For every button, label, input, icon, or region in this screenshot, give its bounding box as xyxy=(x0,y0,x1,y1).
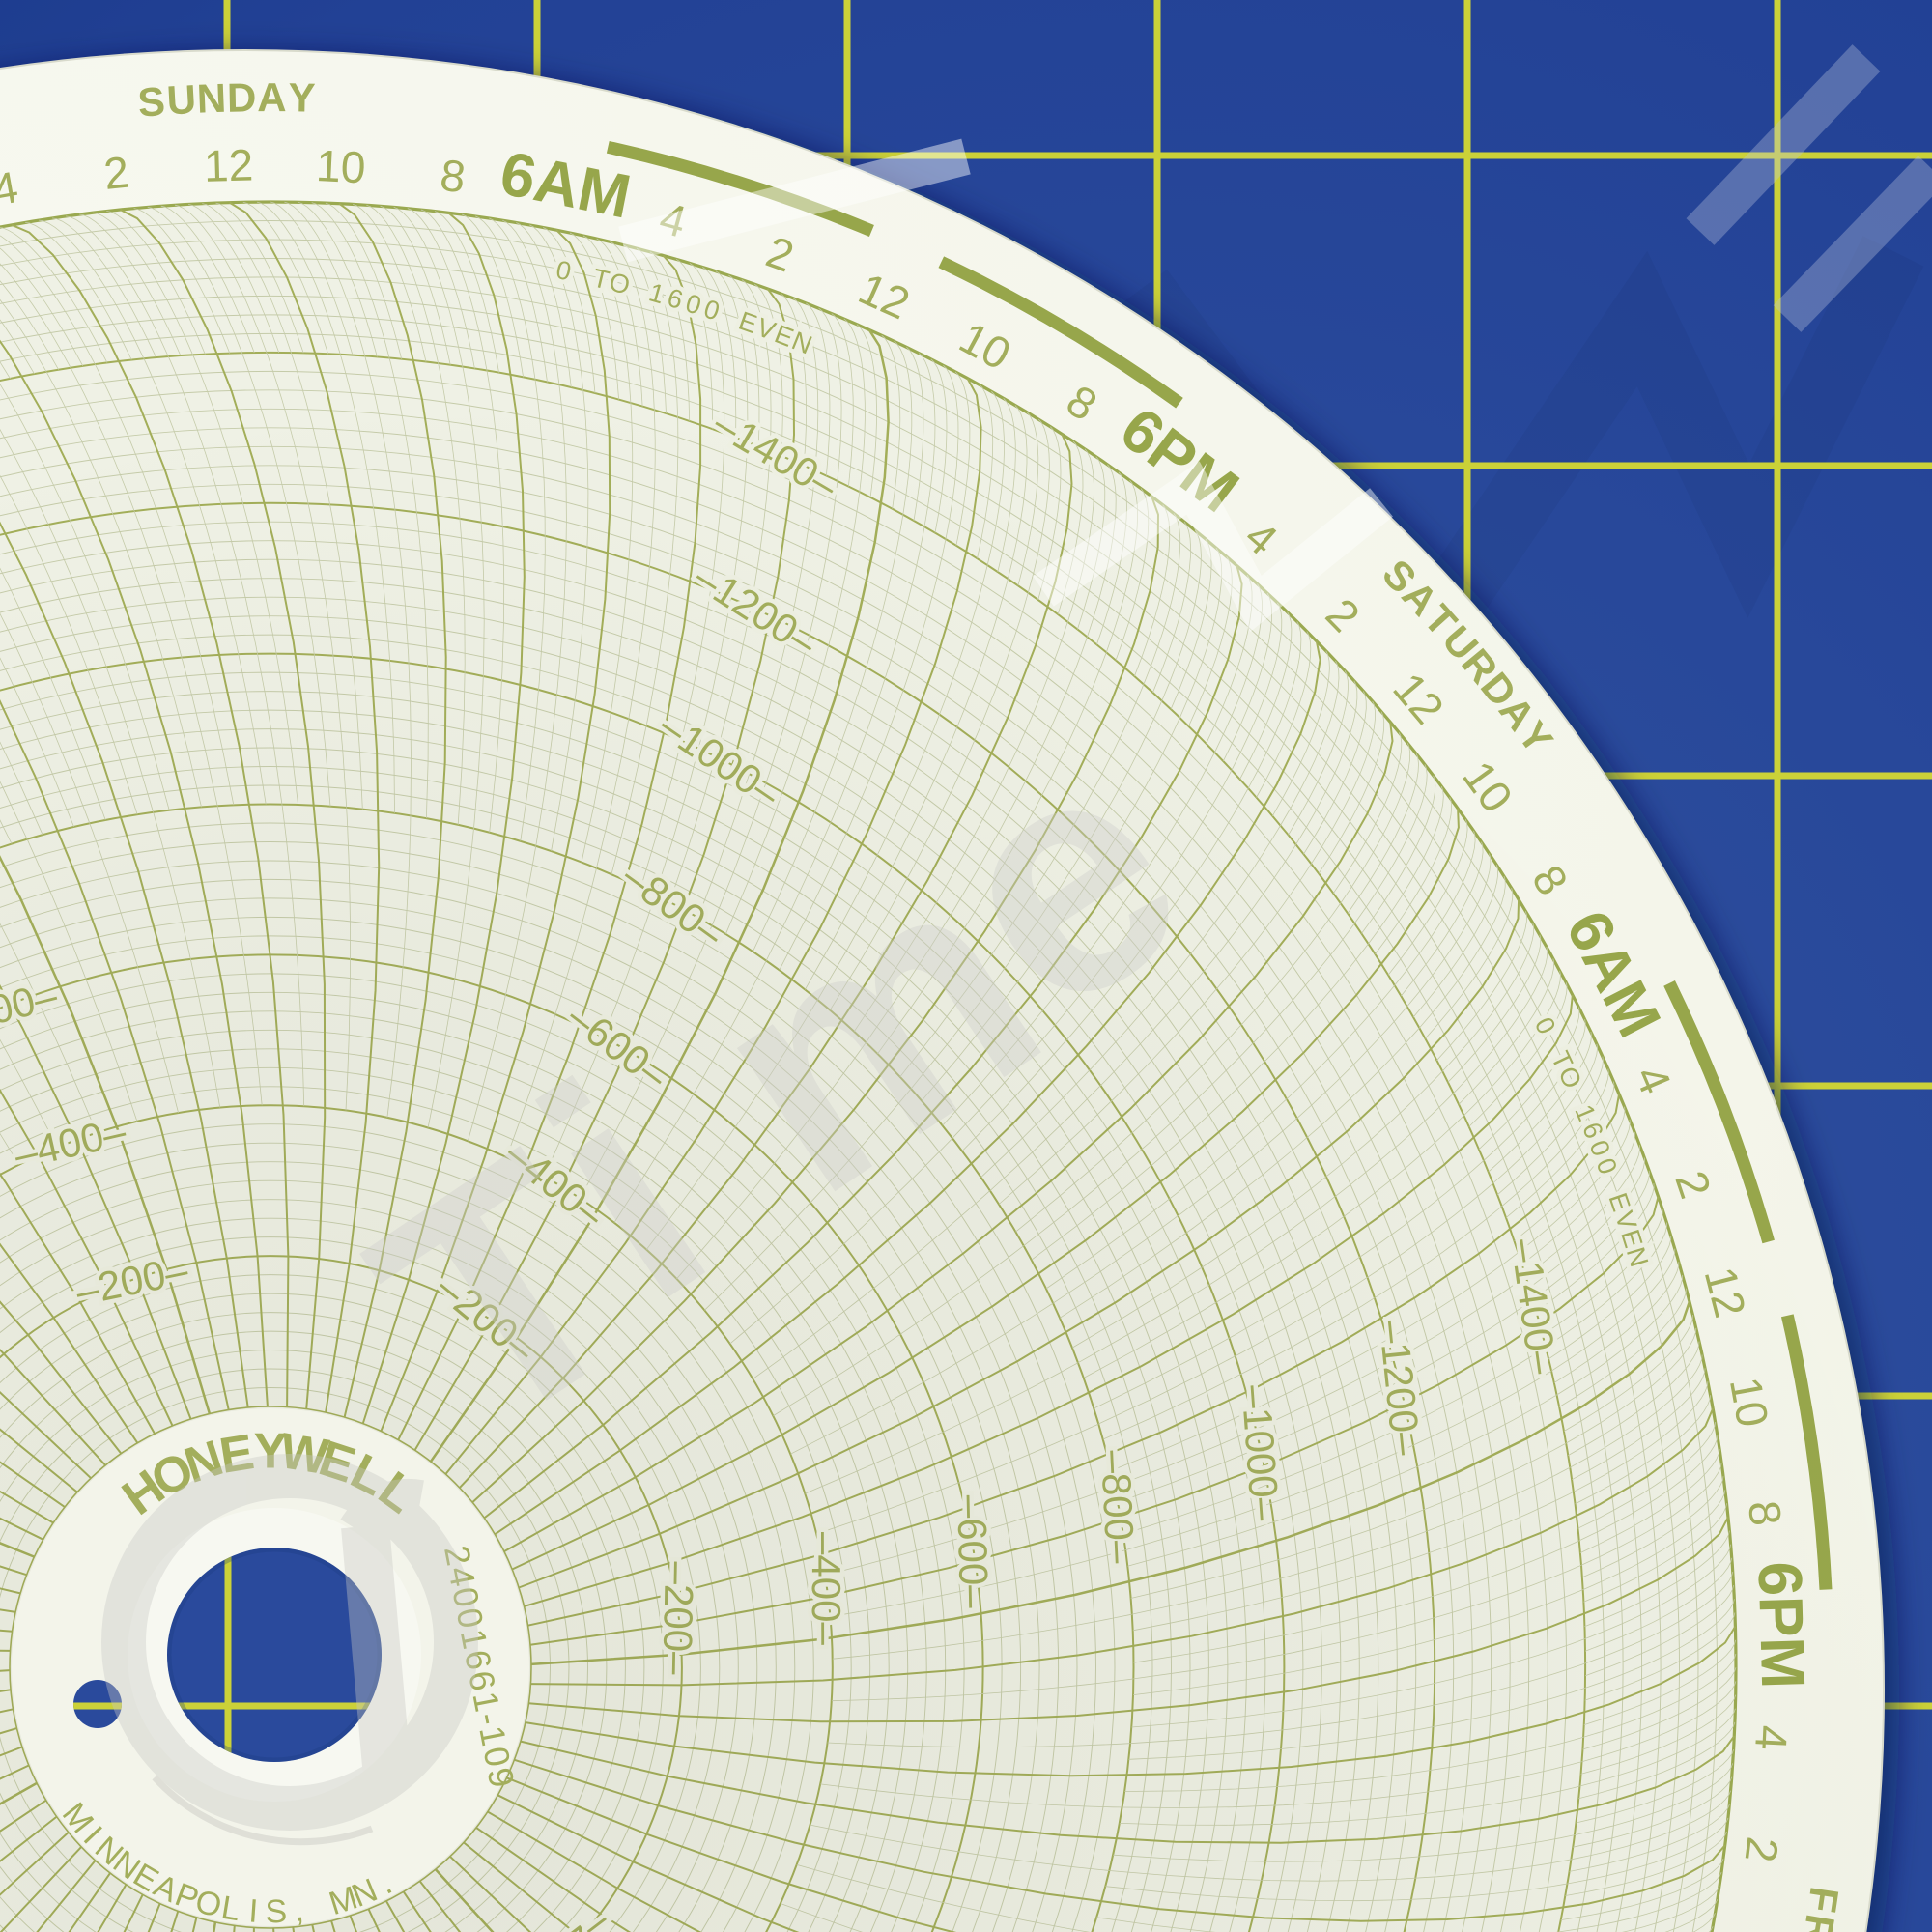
svg-text:10: 10 xyxy=(315,140,367,192)
svg-text:2: 2 xyxy=(101,147,131,199)
svg-text:U: U xyxy=(165,76,197,124)
svg-text:D: D xyxy=(227,74,257,121)
svg-text:12: 12 xyxy=(203,139,254,190)
svg-text:Y: Y xyxy=(288,74,316,121)
svg-text:S: S xyxy=(265,1893,288,1931)
svg-text:A: A xyxy=(257,74,286,120)
svg-text:N: N xyxy=(196,75,227,122)
svg-text:S: S xyxy=(136,78,166,126)
